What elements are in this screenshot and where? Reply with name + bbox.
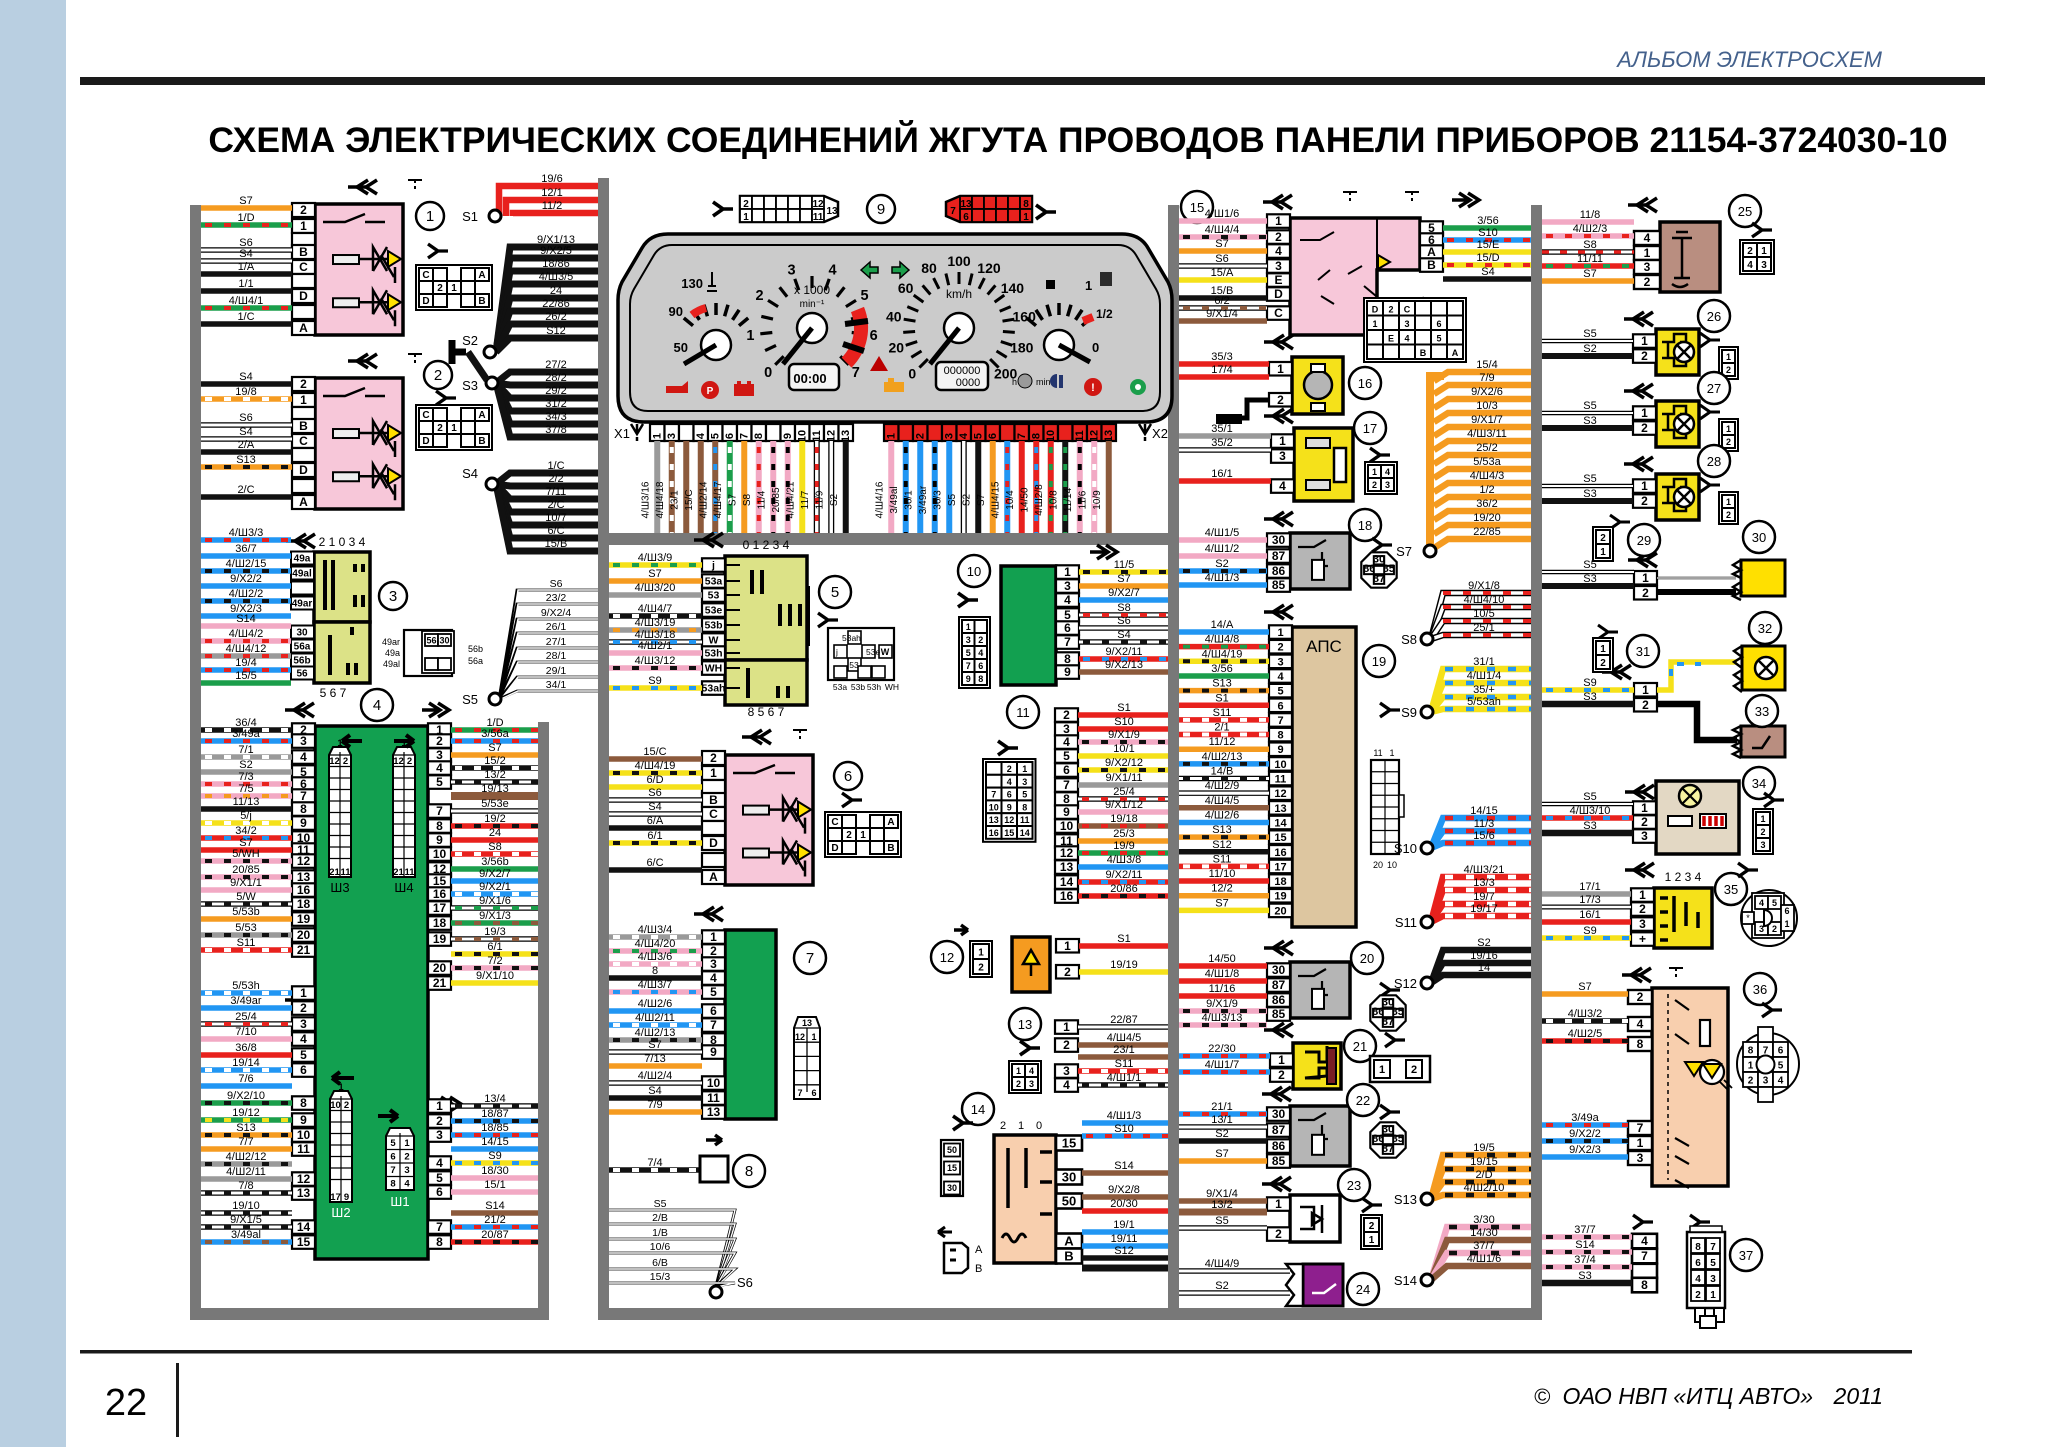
svg-text:7: 7 [436, 1220, 443, 1234]
svg-text:S1: S1 [462, 209, 478, 224]
svg-text:4/Ш4/12: 4/Ш4/12 [226, 643, 267, 655]
svg-text:3: 3 [1029, 1079, 1034, 1089]
svg-text:6/2: 6/2 [1214, 295, 1229, 307]
svg-text:4/Ш2/5: 4/Ш2/5 [1568, 1028, 1603, 1040]
svg-text:17/4: 17/4 [1211, 364, 1232, 376]
svg-text:1: 1 [710, 930, 717, 944]
svg-text:8: 8 [1748, 1046, 1754, 1057]
svg-text:10: 10 [433, 847, 447, 861]
svg-text:16: 16 [1274, 847, 1286, 859]
svg-text:S4: S4 [1117, 629, 1130, 641]
svg-text:8: 8 [1695, 1242, 1701, 1253]
svg-text:11/14: 11/14 [1063, 487, 1074, 512]
svg-text:7/7: 7/7 [238, 1136, 253, 1148]
svg-text:20: 20 [1360, 951, 1374, 966]
svg-text:D: D [299, 289, 308, 303]
svg-text:6/C: 6/C [646, 857, 663, 869]
svg-text:28/2: 28/2 [545, 372, 566, 384]
svg-text:14/15: 14/15 [481, 1136, 509, 1148]
svg-text:9: 9 [710, 1045, 717, 1059]
svg-text:4: 4 [436, 1156, 443, 1170]
svg-text:56: 56 [426, 635, 436, 645]
svg-text:4: 4 [300, 1032, 307, 1046]
svg-text:34/1: 34/1 [546, 679, 567, 691]
svg-text:13: 13 [1060, 860, 1074, 874]
svg-text:9/X2/2: 9/X2/2 [230, 573, 262, 585]
svg-text:13: 13 [960, 199, 972, 210]
svg-text:6/D: 6/D [646, 774, 663, 786]
svg-text:S5: S5 [947, 493, 958, 506]
svg-text:3: 3 [436, 1128, 443, 1142]
svg-text:9/X2/5: 9/X2/5 [540, 245, 572, 257]
svg-text:15: 15 [1274, 832, 1286, 844]
svg-text:19: 19 [1372, 654, 1386, 669]
svg-text:9/X1/3: 9/X1/3 [479, 910, 511, 922]
svg-text:13/3: 13/3 [1473, 877, 1494, 889]
svg-text:7: 7 [300, 789, 307, 803]
svg-text:20: 20 [888, 339, 904, 355]
svg-text:1: 1 [300, 986, 307, 1000]
svg-text:S5: S5 [1583, 559, 1596, 571]
svg-text:S4: S4 [239, 371, 252, 383]
svg-text:3: 3 [710, 957, 717, 971]
svg-text:1: 1 [1644, 246, 1651, 260]
svg-text:3: 3 [436, 748, 443, 762]
svg-text:17: 17 [433, 901, 447, 915]
svg-text:22/30: 22/30 [1208, 1043, 1236, 1055]
svg-text:8: 8 [978, 674, 983, 684]
svg-text:8: 8 [436, 1235, 443, 1249]
svg-text:2: 2 [1000, 1120, 1006, 1132]
svg-text:30: 30 [1272, 533, 1286, 547]
svg-text:13: 13 [826, 206, 838, 217]
svg-text:4/Ш3/19: 4/Ш3/19 [635, 617, 676, 629]
svg-text:21: 21 [433, 976, 447, 990]
svg-text:22/87: 22/87 [1110, 1014, 1138, 1026]
svg-text:min: min [1036, 377, 1051, 387]
svg-text:S4: S4 [648, 1085, 661, 1097]
svg-text:15/C: 15/C [684, 489, 695, 510]
svg-text:S2: S2 [1583, 343, 1596, 355]
svg-text:18: 18 [433, 916, 447, 930]
svg-text:2: 2 [1600, 533, 1606, 544]
svg-text:1: 1 [1379, 1064, 1385, 1076]
svg-text:4/Ш3/21: 4/Ш3/21 [1464, 864, 1505, 876]
svg-text:6: 6 [1695, 1258, 1701, 1269]
svg-text:4: 4 [404, 1179, 410, 1190]
svg-text:2: 2 [404, 1152, 409, 1163]
svg-text:B: B [478, 436, 485, 447]
svg-text:2: 2 [1747, 246, 1753, 257]
svg-text:+: + [1639, 932, 1646, 946]
svg-text:B: B [478, 296, 485, 307]
svg-text:49a: 49a [294, 554, 311, 565]
svg-text:22/85: 22/85 [1473, 526, 1501, 538]
svg-text:7: 7 [436, 804, 443, 818]
svg-text:1: 1 [451, 283, 457, 294]
svg-text:1/D: 1/D [237, 212, 254, 224]
svg-text:19/6: 19/6 [541, 173, 562, 185]
svg-text:D: D [1372, 304, 1379, 314]
svg-text:4: 4 [1404, 333, 1409, 343]
svg-text:1/B: 1/B [652, 1227, 668, 1239]
svg-text:11/16: 11/16 [1209, 983, 1236, 995]
svg-text:11/13: 11/13 [233, 796, 260, 808]
svg-text:13: 13 [1018, 1017, 1032, 1032]
svg-text:22/86: 22/86 [542, 298, 570, 310]
svg-text:11/4: 11/4 [756, 490, 767, 509]
svg-text:S7: S7 [1215, 238, 1228, 250]
svg-text:50: 50 [1062, 1194, 1076, 1209]
svg-text:1: 1 [436, 1099, 443, 1113]
svg-text:22: 22 [1356, 1093, 1370, 1108]
svg-text:12: 12 [1088, 430, 1100, 442]
svg-text:27: 27 [1707, 381, 1721, 396]
svg-text:X2: X2 [1152, 426, 1168, 441]
svg-text:19/3: 19/3 [484, 926, 505, 938]
svg-text:9: 9 [1007, 802, 1012, 812]
svg-text:53ah: 53ah [702, 683, 726, 695]
svg-text:7/8: 7/8 [238, 1180, 253, 1192]
svg-text:4/Ш4/9: 4/Ш4/9 [1205, 1258, 1240, 1270]
svg-text:4/Ш4/19: 4/Ш4/19 [635, 760, 676, 772]
svg-text:1: 1 [811, 1032, 816, 1042]
svg-text:17/3: 17/3 [1579, 894, 1600, 906]
svg-text:S13: S13 [236, 454, 256, 466]
svg-text:x 1000: x 1000 [794, 283, 830, 297]
svg-text:25/4: 25/4 [235, 1011, 256, 1023]
svg-text:30: 30 [1272, 1107, 1286, 1121]
svg-text:1: 1 [1726, 424, 1731, 434]
svg-text:7: 7 [1637, 1121, 1644, 1135]
svg-text:19/4: 19/4 [235, 657, 256, 669]
svg-text:S5: S5 [1215, 1215, 1228, 1227]
svg-text:56a: 56a [294, 642, 311, 653]
svg-text:6: 6 [1277, 700, 1283, 712]
svg-text:56: 56 [296, 669, 308, 680]
svg-text:1: 1 [1278, 1053, 1285, 1067]
svg-text:4: 4 [436, 761, 443, 775]
svg-text:S5: S5 [1583, 328, 1596, 340]
svg-text:1: 1 [1748, 1061, 1754, 1072]
svg-text:3: 3 [1064, 579, 1071, 593]
svg-text:3: 3 [1063, 722, 1070, 736]
svg-text:19/19: 19/19 [1110, 959, 1138, 971]
svg-text:3: 3 [1404, 319, 1409, 329]
svg-text:26/2: 26/2 [545, 311, 566, 323]
svg-text:9/X2/7: 9/X2/7 [479, 868, 511, 880]
svg-text:1: 1 [1369, 1235, 1375, 1246]
svg-text:4/Ш4/1: 4/Ш4/1 [229, 295, 264, 307]
svg-text:3: 3 [1277, 656, 1283, 668]
svg-text:1/2: 1/2 [1479, 484, 1494, 496]
svg-text:4/Ш1/1: 4/Ш1/1 [1107, 1072, 1142, 1084]
svg-text:S7: S7 [239, 195, 252, 207]
svg-text:31: 31 [1636, 644, 1650, 659]
svg-text:2: 2 [1278, 1068, 1285, 1082]
svg-text:1: 1 [404, 1138, 410, 1149]
svg-text:4/Ш1/6: 4/Ш1/6 [1205, 208, 1240, 220]
svg-text:13: 13 [1103, 430, 1115, 442]
svg-text:19/18: 19/18 [1110, 813, 1138, 825]
svg-text:1: 1 [1642, 683, 1649, 697]
svg-text:min⁻¹: min⁻¹ [800, 299, 825, 310]
svg-text:19/16: 19/16 [1470, 950, 1498, 962]
svg-text:B: B [887, 843, 894, 854]
svg-text:C: C [299, 434, 308, 448]
svg-text:4: 4 [1641, 1234, 1648, 1248]
svg-text:30: 30 [1062, 1170, 1076, 1185]
svg-text:15/2: 15/2 [484, 755, 505, 767]
svg-text:15/B: 15/B [545, 538, 568, 550]
svg-text:3/49ar: 3/49ar [230, 995, 262, 1007]
svg-text:S13: S13 [1212, 678, 1232, 690]
svg-text:10: 10 [796, 430, 808, 442]
svg-text:6: 6 [1064, 621, 1071, 635]
svg-text:4: 4 [1063, 735, 1070, 749]
svg-text:19/10: 19/10 [232, 1200, 260, 1212]
svg-text:11/11: 11/11 [1577, 253, 1603, 265]
svg-text:34/2: 34/2 [235, 825, 256, 837]
svg-text:8: 8 [745, 1163, 753, 1180]
svg-text:9/X2/4: 9/X2/4 [541, 607, 572, 619]
svg-text:3: 3 [1761, 260, 1767, 271]
svg-text:2: 2 [755, 288, 763, 304]
svg-text:S2: S2 [1215, 558, 1228, 570]
svg-text:1: 1 [1639, 888, 1646, 902]
svg-text:S7: S7 [648, 568, 661, 580]
svg-text:S8: S8 [1583, 239, 1596, 251]
svg-text:7: 7 [390, 1165, 395, 1176]
svg-text:4/Ш2/9: 4/Ш2/9 [1205, 780, 1240, 792]
svg-text:B: B [1427, 258, 1436, 272]
svg-text:S14: S14 [1114, 1160, 1134, 1172]
svg-text:5/53: 5/53 [235, 922, 256, 934]
svg-text:11: 11 [811, 430, 823, 442]
svg-text:4/Ш4/5: 4/Ш4/5 [1107, 1032, 1142, 1044]
svg-text:6: 6 [978, 661, 983, 671]
svg-text:1: 1 [1760, 814, 1765, 824]
svg-text:20/30: 20/30 [1110, 1198, 1138, 1210]
svg-text:S2: S2 [961, 493, 972, 506]
svg-text:7: 7 [1710, 1242, 1716, 1253]
svg-text:S8: S8 [742, 493, 753, 506]
svg-text:S7: S7 [1117, 573, 1130, 585]
svg-text:4/Ш1/4: 4/Ш1/4 [1467, 670, 1502, 682]
svg-text:1: 1 [1600, 644, 1606, 655]
svg-text:24: 24 [489, 827, 501, 839]
svg-text:j: j [835, 647, 838, 657]
svg-text:7/3: 7/3 [238, 771, 253, 783]
svg-text:13/4: 13/4 [484, 1093, 505, 1105]
svg-text:10: 10 [1045, 430, 1057, 442]
svg-text:WH: WH [705, 663, 723, 675]
svg-text:S9: S9 [1583, 677, 1596, 689]
svg-text:5: 5 [1064, 608, 1071, 622]
svg-text:3: 3 [1760, 840, 1765, 850]
svg-text:3/49a: 3/49a [1571, 1112, 1599, 1124]
svg-text:2: 2 [1388, 304, 1393, 314]
svg-text:9/X1/6: 9/X1/6 [479, 895, 511, 907]
svg-text:A: A [1452, 348, 1459, 358]
svg-text:D: D [422, 296, 429, 307]
svg-text:7: 7 [1063, 778, 1070, 792]
svg-text:19/20: 19/20 [1473, 512, 1501, 524]
svg-text:2: 2 [1016, 1079, 1021, 1089]
svg-text:S13: S13 [236, 1122, 256, 1134]
svg-text:S5: S5 [654, 1198, 667, 1210]
svg-text:10/1: 10/1 [1113, 743, 1134, 755]
svg-text:19/1: 19/1 [1113, 1219, 1134, 1231]
svg-text:24: 24 [1356, 1282, 1370, 1297]
svg-text:11/10: 11/10 [1209, 868, 1236, 880]
svg-text:16: 16 [1060, 889, 1074, 903]
svg-text:11: 11 [1074, 430, 1086, 442]
svg-text:S2: S2 [239, 759, 252, 771]
svg-text:5/53a: 5/53a [1473, 456, 1501, 468]
svg-text:S1: S1 [1117, 702, 1130, 714]
svg-text:1: 1 [1279, 434, 1286, 448]
svg-text:1: 1 [978, 948, 984, 959]
svg-text:3/49al: 3/49al [889, 486, 900, 513]
svg-text:12: 12 [1004, 815, 1014, 825]
svg-text:C: C [299, 260, 308, 274]
svg-text:1: 1 [1275, 1197, 1282, 1211]
svg-text:X1: X1 [614, 426, 630, 441]
svg-text:S7: S7 [1583, 268, 1596, 280]
svg-text:АЛЬБОМ ЭЛЕКТРОСХЕМ: АЛЬБОМ ЭЛЕКТРОСХЕМ [1615, 47, 1882, 72]
svg-text:7: 7 [852, 365, 860, 381]
svg-text:6: 6 [300, 1063, 307, 1077]
svg-text:6: 6 [710, 1004, 717, 1018]
svg-text:2: 2 [436, 1114, 443, 1128]
svg-text:S7: S7 [1578, 981, 1591, 993]
svg-text:4/Ш3/2: 4/Ш3/2 [1568, 1008, 1603, 1020]
svg-text:53b: 53b [704, 620, 722, 632]
svg-text:13/2: 13/2 [484, 769, 505, 781]
svg-text:S7: S7 [488, 742, 501, 754]
svg-text:50: 50 [947, 1145, 957, 1155]
svg-text:*: * [1746, 913, 1750, 923]
svg-text:2: 2 [1007, 764, 1012, 774]
svg-text:15/5: 15/5 [235, 670, 256, 682]
svg-text:9/X2/7: 9/X2/7 [1108, 587, 1140, 599]
svg-text:7/10: 7/10 [235, 1026, 256, 1038]
svg-text:1: 1 [300, 393, 307, 407]
svg-text:14/A: 14/A [1211, 619, 1234, 631]
svg-text:4/Ш4/4: 4/Ш4/4 [1205, 224, 1240, 236]
svg-text:7: 7 [806, 950, 814, 967]
svg-text:S2: S2 [1215, 1128, 1228, 1140]
svg-text:9: 9 [1277, 744, 1283, 756]
svg-text:18/85: 18/85 [481, 1122, 509, 1134]
svg-text:3/56: 3/56 [1477, 215, 1498, 227]
svg-text:4/Ш2/4: 4/Ш2/4 [638, 1070, 673, 1082]
svg-text:C: C [709, 807, 718, 821]
svg-text:2: 2 [434, 367, 442, 384]
svg-text:14: 14 [1274, 817, 1287, 829]
svg-text:1: 1 [1641, 479, 1648, 493]
svg-text:36/7: 36/7 [235, 543, 256, 555]
svg-text:87: 87 [1272, 1123, 1286, 1137]
svg-text:4/Ш2/8: 4/Ш2/8 [1034, 484, 1045, 516]
svg-text:13/2: 13/2 [1211, 1199, 1232, 1211]
svg-text:21: 21 [329, 867, 340, 878]
svg-text:5 6 7: 5 6 7 [320, 686, 347, 700]
svg-text:2: 2 [437, 423, 443, 434]
svg-text:14: 14 [1478, 962, 1490, 974]
svg-text:2: 2 [1064, 965, 1071, 979]
svg-text:4/Ш1/5: 4/Ш1/5 [1205, 527, 1240, 539]
svg-text:S2: S2 [1215, 1280, 1228, 1292]
svg-text:23/1: 23/1 [669, 490, 680, 510]
svg-text:2: 2 [436, 734, 443, 748]
svg-text:9/X1/8: 9/X1/8 [1468, 580, 1500, 592]
svg-text:1/1: 1/1 [238, 278, 253, 290]
svg-text:2: 2 [1642, 698, 1649, 712]
svg-text:3: 3 [1385, 480, 1390, 490]
svg-text:8: 8 [1023, 199, 1029, 210]
svg-text:15: 15 [947, 1163, 957, 1173]
svg-text:21/2: 21/2 [484, 1214, 505, 1226]
svg-text:8: 8 [1637, 1037, 1644, 1051]
svg-text:6: 6 [724, 433, 736, 439]
svg-text:2: 2 [407, 756, 412, 767]
svg-text:12: 12 [812, 199, 824, 210]
svg-text:8: 8 [436, 819, 443, 833]
svg-text:S9: S9 [488, 1150, 501, 1162]
svg-text:1/2: 1/2 [1096, 307, 1113, 321]
svg-text:S7: S7 [1215, 897, 1228, 909]
svg-text:4/Ш3/10: 4/Ш3/10 [1570, 805, 1611, 817]
svg-text:S14: S14 [485, 1200, 505, 1212]
svg-text:10/8: 10/8 [1048, 490, 1059, 510]
svg-text:5: 5 [831, 584, 839, 601]
svg-text:3/49al: 3/49al [231, 1229, 261, 1241]
svg-text:6: 6 [436, 1185, 443, 1199]
svg-text:1: 1 [1085, 278, 1092, 293]
svg-text:4/Ш2/2: 4/Ш2/2 [229, 588, 264, 600]
svg-text:4/Ш2/11: 4/Ш2/11 [226, 1166, 266, 1178]
svg-text:35/3: 35/3 [1211, 351, 1232, 363]
svg-text:60: 60 [898, 280, 914, 296]
svg-text:10: 10 [297, 1128, 311, 1142]
svg-text:49ar: 49ar [382, 637, 400, 647]
svg-text:B: B [1420, 348, 1427, 358]
svg-text:©: © [1534, 1384, 1551, 1409]
svg-text:4/Ш3/11: 4/Ш3/11 [1467, 428, 1507, 440]
svg-text:86: 86 [1272, 1139, 1286, 1153]
svg-text:13: 13 [989, 815, 999, 825]
svg-text:36/1: 36/1 [903, 490, 914, 510]
svg-text:17: 17 [1363, 421, 1377, 436]
svg-text:32: 32 [1758, 621, 1772, 636]
svg-text:4: 4 [1063, 1078, 1070, 1092]
svg-text:4/Ш2/14: 4/Ш2/14 [698, 481, 709, 518]
svg-text:9/X1/9: 9/X1/9 [1206, 998, 1238, 1010]
svg-text:14: 14 [1020, 828, 1030, 838]
svg-text:12/2: 12/2 [1211, 883, 1232, 895]
svg-text:2: 2 [1695, 1290, 1701, 1301]
svg-text:S7: S7 [976, 493, 987, 506]
svg-text:5: 5 [1436, 333, 1441, 343]
svg-text:4/Ш4/16: 4/Ш4/16 [874, 481, 885, 518]
svg-text:1: 1 [1277, 627, 1283, 639]
svg-text:53a: 53a [833, 682, 847, 692]
svg-text:11: 11 [1373, 748, 1382, 758]
svg-text:S1: S1 [1117, 933, 1130, 945]
svg-text:2: 2 [1641, 421, 1648, 435]
